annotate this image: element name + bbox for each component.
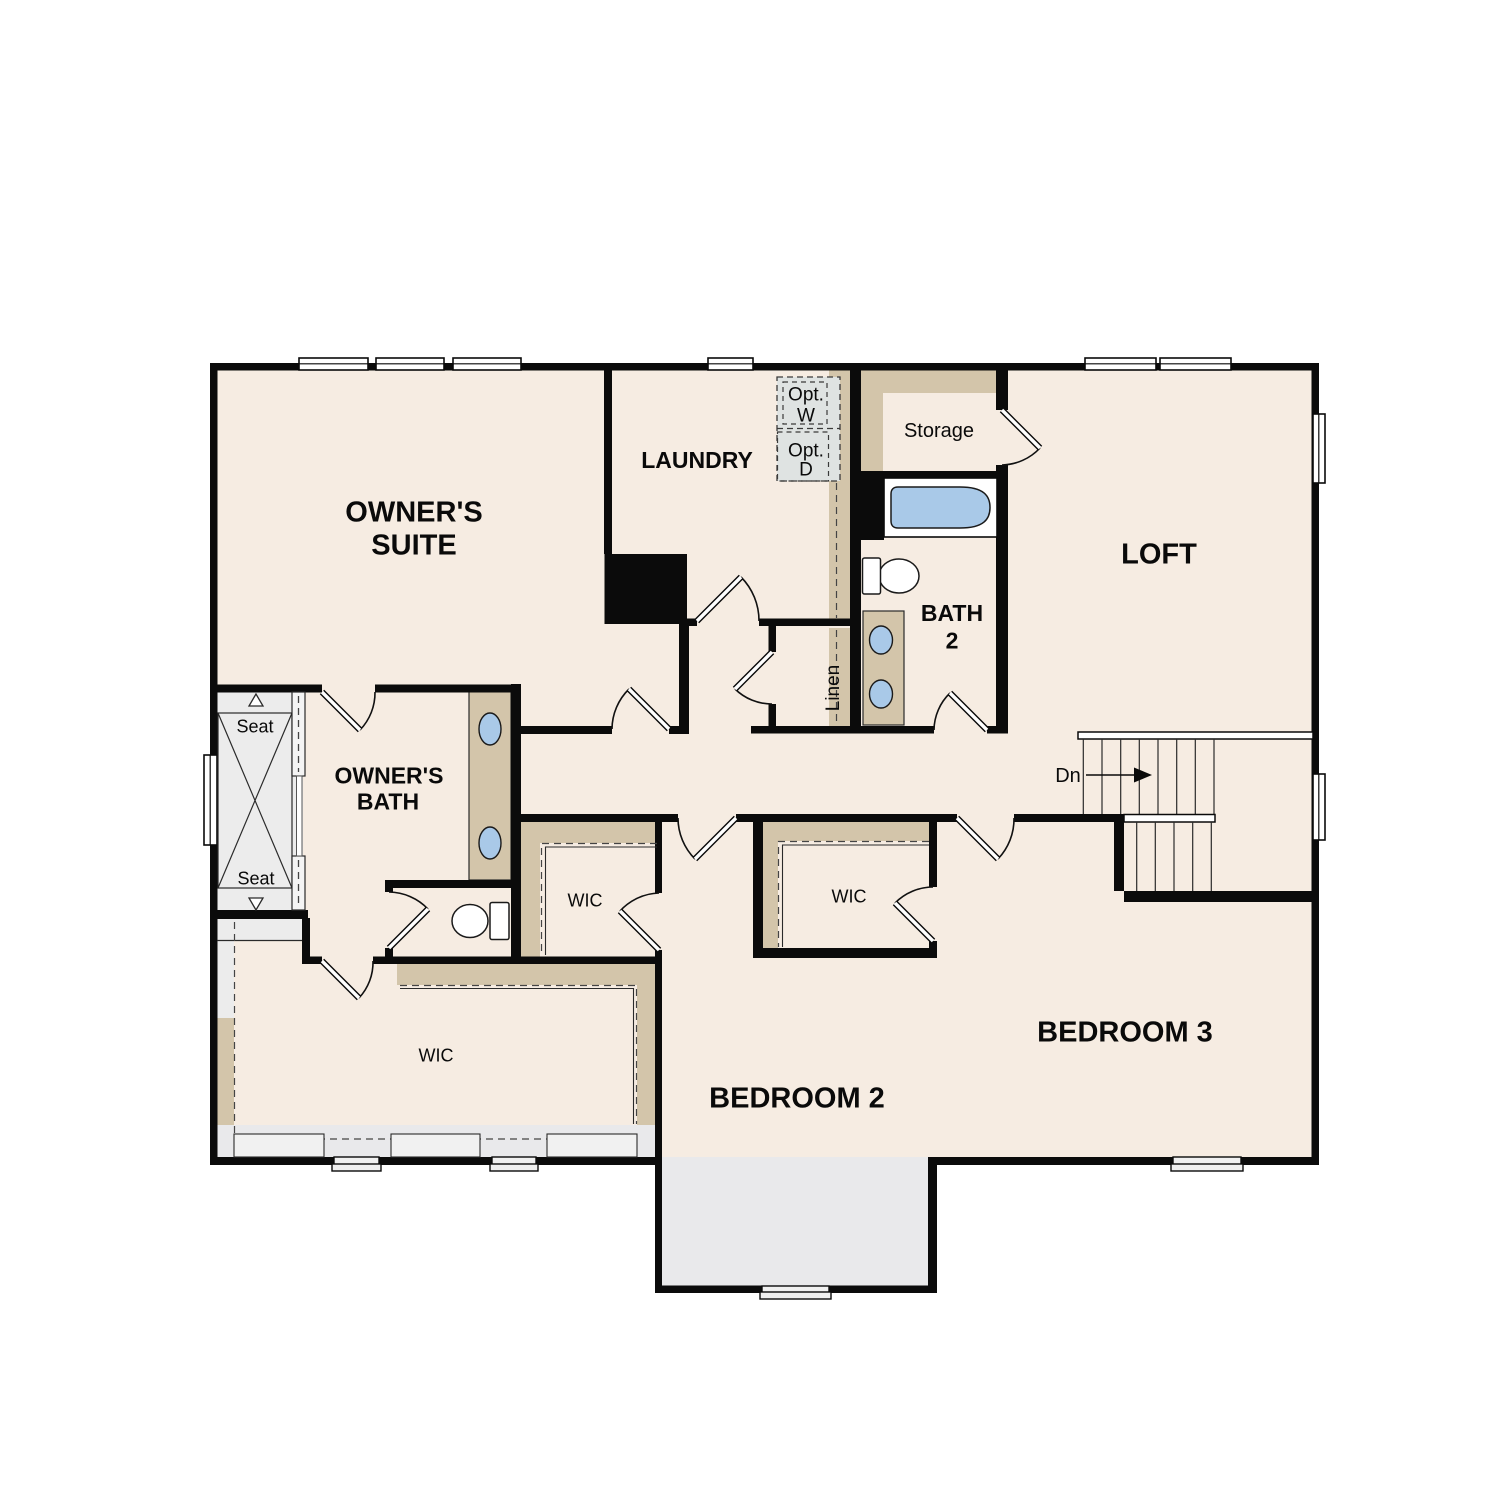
svg-text:WIC: WIC [419, 1046, 454, 1066]
svg-text:SUITE: SUITE [371, 530, 456, 562]
svg-text:Seat: Seat [236, 717, 273, 737]
svg-text:LOFT: LOFT [1121, 539, 1197, 571]
svg-text:D: D [799, 460, 813, 481]
svg-text:W: W [797, 406, 815, 427]
svg-text:OWNER'S: OWNER'S [345, 497, 482, 529]
svg-text:BATH: BATH [357, 789, 419, 815]
svg-text:Opt.: Opt. [788, 385, 824, 406]
svg-text:BATH: BATH [921, 600, 983, 626]
svg-text:Seat: Seat [237, 869, 274, 889]
svg-text:WIC: WIC [568, 891, 603, 911]
svg-text:Storage: Storage [904, 420, 974, 442]
svg-text:BEDROOM 2: BEDROOM 2 [709, 1083, 885, 1115]
svg-text:Dn: Dn [1055, 765, 1081, 787]
svg-text:2: 2 [946, 628, 959, 654]
svg-text:LAUNDRY: LAUNDRY [641, 447, 753, 473]
svg-text:Linen: Linen [823, 665, 844, 712]
svg-text:BEDROOM 3: BEDROOM 3 [1037, 1017, 1213, 1049]
svg-text:WIC: WIC [832, 887, 867, 907]
svg-text:Opt.: Opt. [788, 441, 824, 462]
svg-text:OWNER'S: OWNER'S [335, 763, 444, 789]
